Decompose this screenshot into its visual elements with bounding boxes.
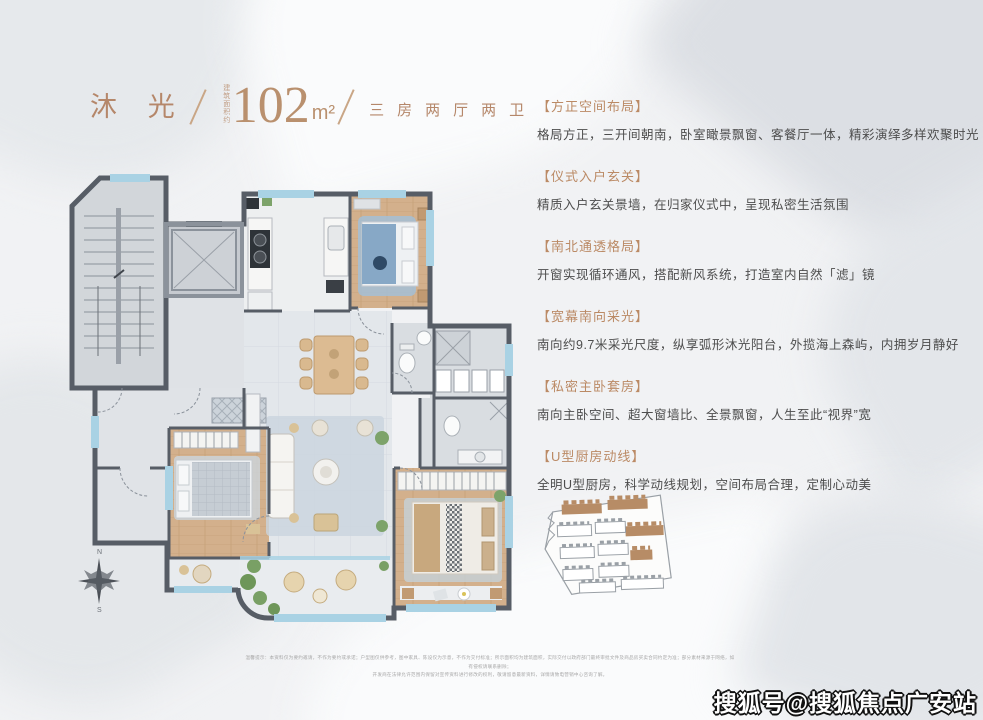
window (165, 466, 173, 510)
dining-chair (300, 377, 312, 389)
side-table (402, 588, 414, 599)
window (258, 190, 314, 198)
armchair (312, 420, 328, 436)
window (110, 174, 150, 182)
washer (472, 370, 487, 392)
pillow (482, 542, 494, 570)
disclaimer-line-2: 开发商在法律允许范围内保留对宣传资料进行修改的权利，敬请留意最新资料，详情请致电… (245, 671, 735, 680)
toilet (444, 416, 460, 436)
sofa (268, 434, 294, 518)
kitchen-label-box (246, 198, 259, 209)
dining-chair (300, 339, 312, 351)
plant (268, 603, 280, 615)
area-prefix-vertical: 建筑面积约 (221, 84, 231, 124)
dining-area (300, 336, 368, 394)
kitchen-sink (328, 226, 344, 250)
window (91, 416, 99, 448)
pouf (314, 514, 338, 531)
plant (240, 574, 256, 590)
plan-name: 沐 光 (90, 85, 187, 128)
blanket (414, 504, 440, 572)
window (505, 344, 513, 376)
sliding-door (240, 556, 390, 560)
desk (354, 199, 380, 209)
feature-heading: 【南北通透格局】 (537, 236, 967, 255)
elevator (172, 221, 236, 290)
feature-body: 南向约9.7米采光尺度，纵享弧形沐光阳台，外揽海上森屿，内拥岁月静好 (537, 334, 967, 353)
balcony-table (193, 565, 211, 583)
feature-item: 【仪式入户玄关】 精质入户玄关景墙，在归家仪式中，呈现私密生活氛围 (537, 166, 967, 213)
balcony-main-floor (239, 558, 392, 618)
duvet (192, 462, 250, 516)
throw-blanket (373, 256, 387, 270)
features-panel: 【方正空间布局】 格局方正，三开间朝南，卧室瞰景飘窗、客餐厅一体，精彩演绎多样欢… (537, 96, 967, 516)
site-plan (538, 490, 690, 604)
balcony-table (313, 589, 327, 603)
dining-table (314, 336, 354, 394)
kitchen-appliance (326, 280, 344, 293)
disclaimer-line-1: 温馨提示：本资料仅为要约邀请，不作为要约或承诺；户型图仅供参考，图中家具、陈设仅… (245, 654, 735, 671)
dining-chair (356, 377, 368, 389)
side-table (289, 423, 299, 433)
armchair (357, 420, 373, 436)
compass: N S (76, 544, 122, 614)
window (406, 604, 496, 612)
kitchen-plant (262, 197, 272, 206)
dining-chair (356, 358, 368, 370)
window (505, 496, 513, 548)
washer (490, 370, 504, 392)
title-divider-slash (337, 89, 354, 125)
basin (417, 331, 431, 345)
window (274, 614, 386, 622)
pillow (482, 508, 494, 536)
feature-heading: 【宽幕南向采光】 (537, 306, 967, 325)
bed-runner (446, 504, 462, 572)
window (174, 586, 232, 593)
feature-heading: 【U型厨房动线】 (537, 446, 967, 465)
title-divider-slash (189, 89, 206, 125)
feature-heading: 【方正空间布局】 (537, 96, 967, 115)
compass-rose (78, 558, 120, 604)
plant (253, 591, 267, 605)
bay-window-sill (400, 586, 502, 600)
plant (376, 520, 388, 532)
washer (454, 370, 469, 392)
feature-heading: 【私密主卧套房】 (537, 376, 967, 395)
side-table (289, 513, 299, 523)
shoe-cabinet (246, 394, 260, 452)
floor-plan (62, 166, 514, 624)
public-lobby-floor (166, 296, 244, 388)
feature-body: 南向主卧空间、超大窗墙比、全景飘窗，人生至此“视界”宽 (537, 404, 967, 423)
feature-item: 【宽幕南向采光】 南向约9.7米采光尺度，纵享弧形沐光阳台，外揽海上森屿，内拥岁… (537, 306, 967, 353)
dining-chair (356, 339, 368, 351)
pillow (402, 261, 414, 283)
compass-north-label: N (97, 549, 102, 556)
balcony-chair (284, 572, 304, 592)
feature-item: 【南北通透格局】 开窗实现循环通风，搭配新风系统，打造室内自然「滤」镜 (537, 236, 967, 283)
window (426, 210, 434, 266)
feature-body: 精质入户玄关景墙，在归家仪式中，呈现私密生活氛围 (537, 194, 967, 213)
plant (247, 559, 261, 573)
feature-item: 【方正空间布局】 格局方正，三开间朝南，卧室瞰景飘窗、客餐厅一体，精彩演绎多样欢… (537, 96, 967, 143)
feature-item: 【U型厨房动线】 全明U型厨房，科学动线规划，空间布局合理，定制心动美 (537, 446, 967, 493)
watermark: 搜狐号@搜狐焦点广安站 (714, 684, 977, 718)
plant (494, 490, 506, 502)
window (358, 190, 406, 198)
area-value: 102 (232, 84, 310, 128)
page-root: 沐 光 建筑面积约 102 m² 三房两厅两卫 【方正空间布局】 格局方正，三开… (0, 0, 983, 720)
plant (375, 431, 389, 445)
plan-title-row: 沐 光 建筑面积约 102 m² 三房两厅两卫 (90, 84, 537, 128)
disclaimer: 温馨提示：本资料仅为要约邀请，不作为要约或承诺；户型图仅供参考，图中家具、陈设仅… (245, 654, 735, 680)
compass-south-label: S (97, 607, 102, 614)
feature-item: 【私密主卧套房】 南向主卧空间、超大窗墙比、全景飘窗，人生至此“视界”宽 (537, 376, 967, 423)
area-unit: m² (312, 102, 335, 128)
balcony-chair (179, 565, 189, 575)
bench (246, 524, 260, 534)
fridge (248, 292, 272, 310)
pillow (178, 465, 189, 485)
balcony-chair (336, 570, 356, 590)
side-table (490, 588, 502, 599)
washer (436, 370, 451, 392)
layout-spec: 三房两厅两卫 (369, 99, 537, 128)
pillow (178, 491, 189, 511)
feature-heading: 【仪式入户玄关】 (537, 166, 967, 185)
pillow (402, 227, 414, 249)
feature-body: 格局方正，三开间朝南，卧室瞰景飘窗、客餐厅一体，精彩演绎多样欢聚时光 (537, 124, 967, 143)
bedroom-north-duvet (362, 224, 396, 284)
toilet (399, 353, 415, 373)
feature-body: 开窗实现循环通风，搭配新风系统，打造室内自然「滤」镜 (537, 264, 967, 283)
plant (379, 561, 389, 571)
dining-chair (300, 358, 312, 370)
